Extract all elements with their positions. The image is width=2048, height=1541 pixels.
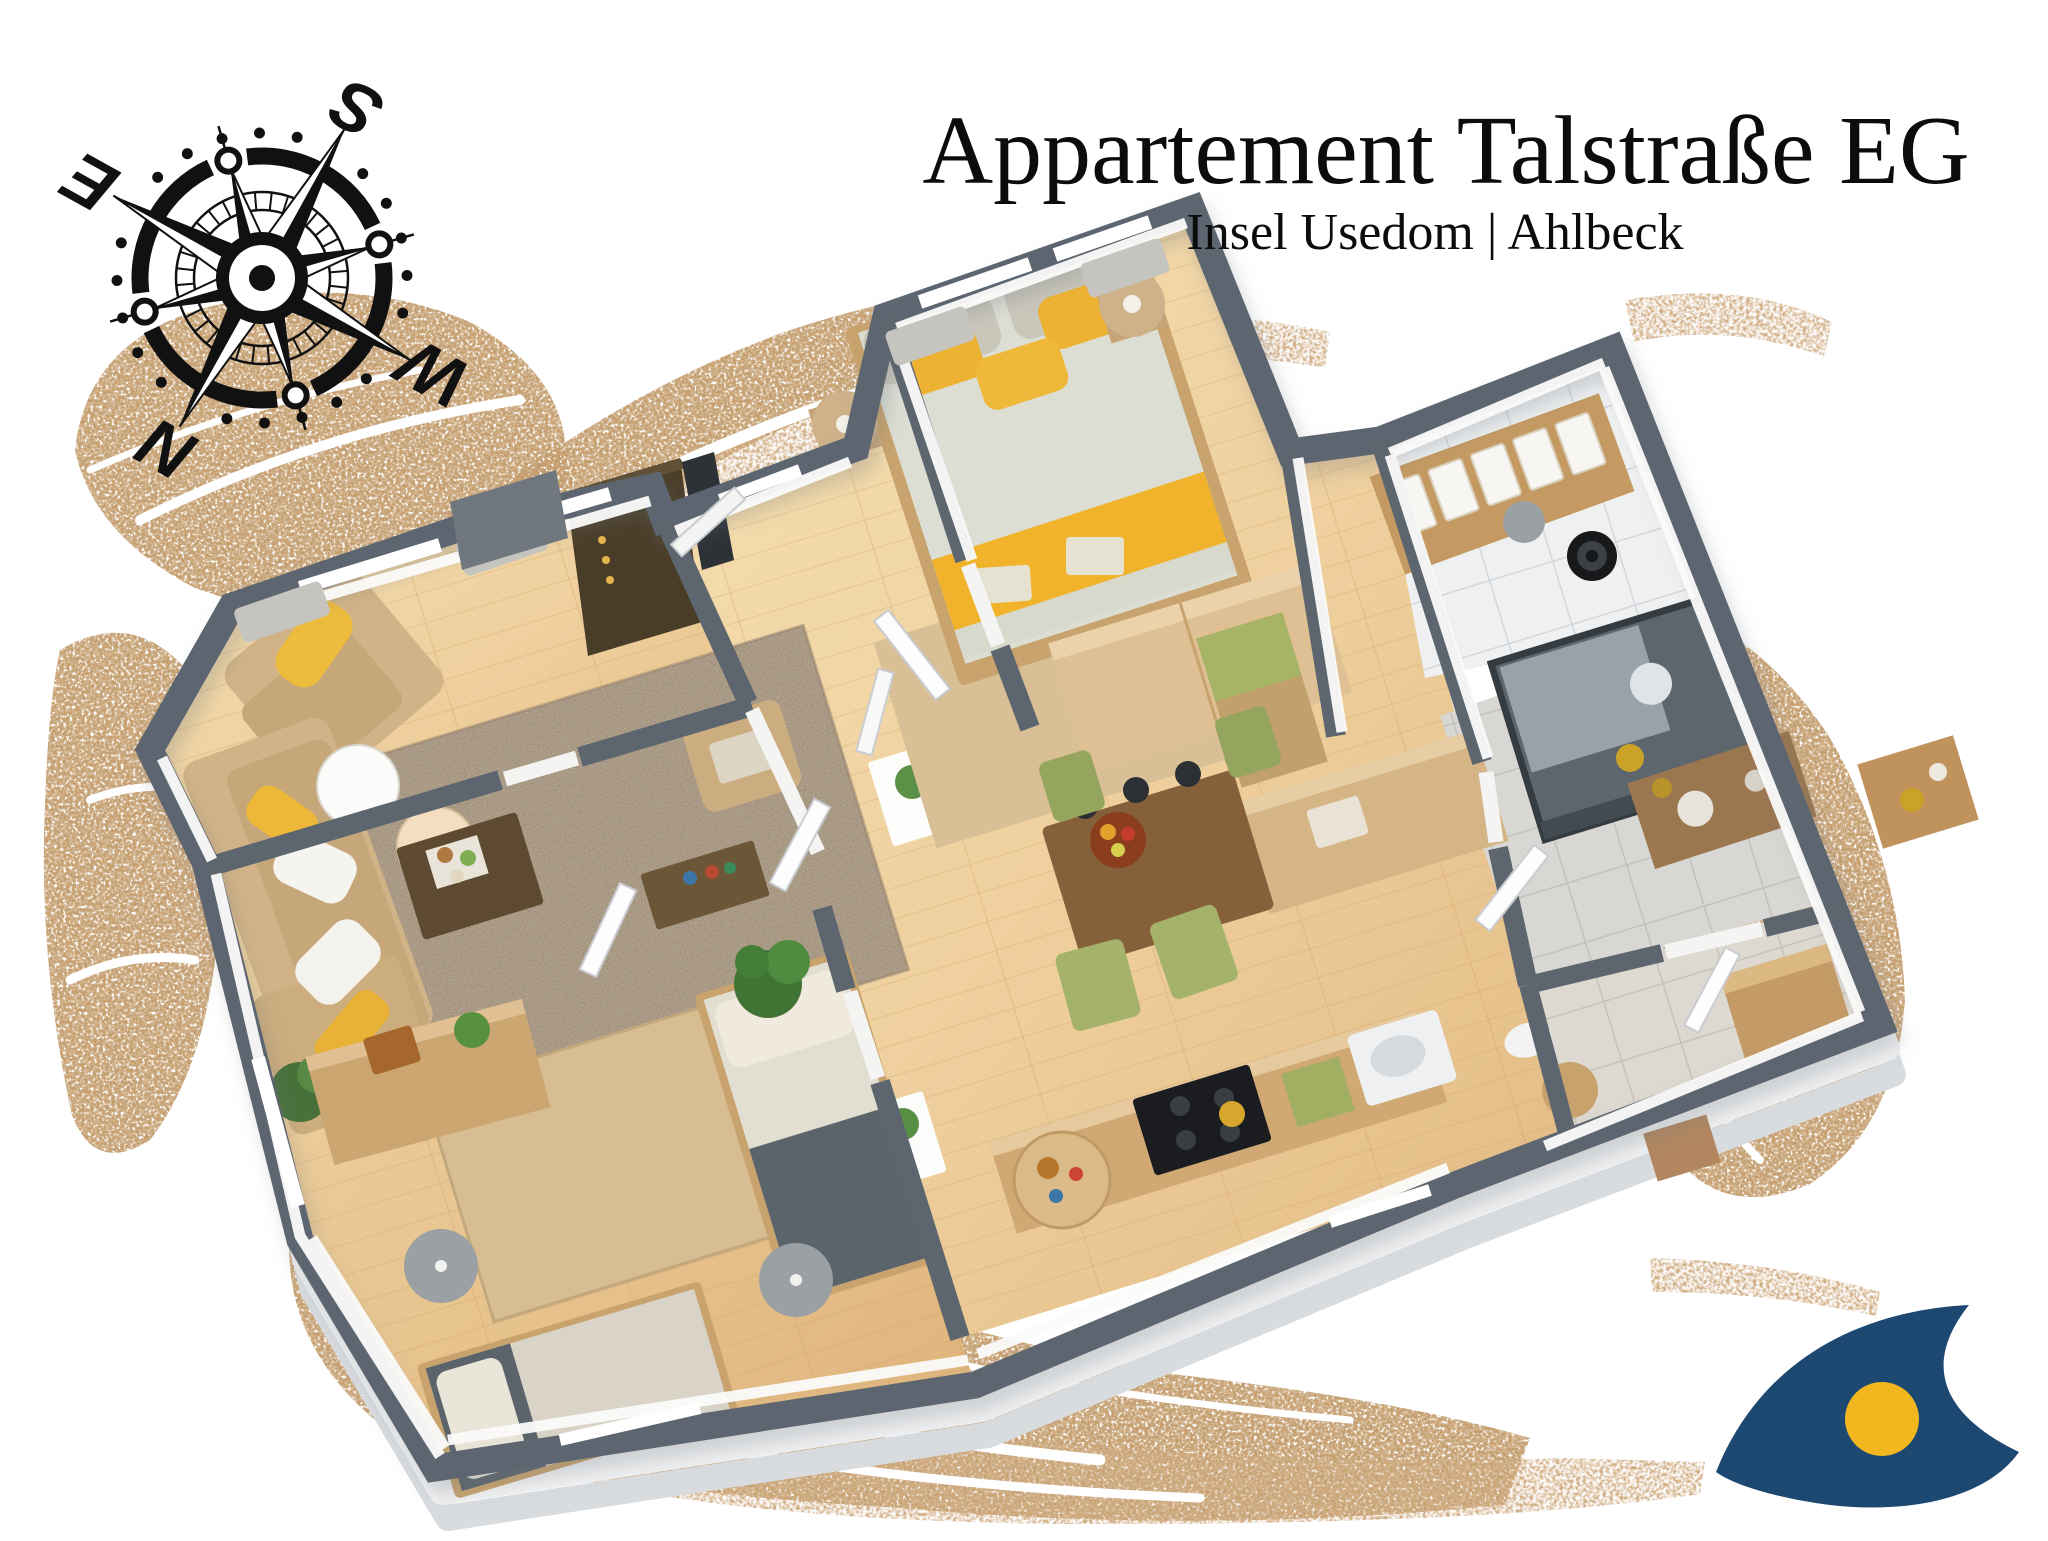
svg-text:Insel Usedom | Ahlbeck: Insel Usedom | Ahlbeck: [1186, 204, 1683, 261]
svg-text:Appartement Talstraße EG: Appartement Talstraße EG: [922, 97, 1969, 205]
